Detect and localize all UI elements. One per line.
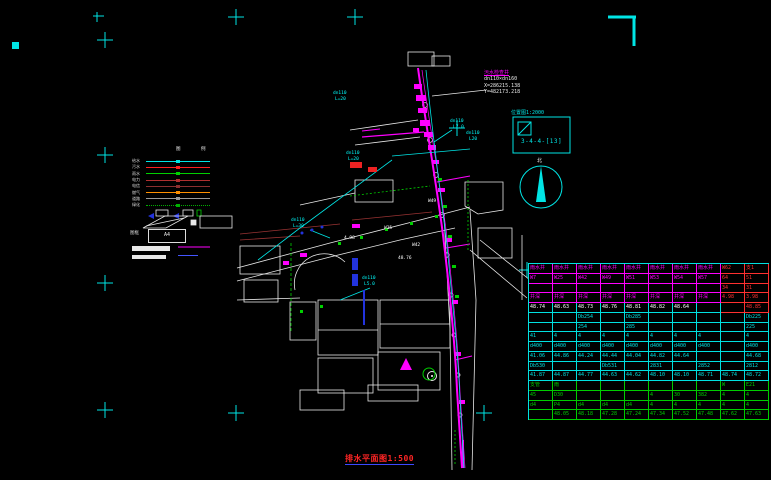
coord-y: Y=482173.218 (484, 89, 520, 96)
table-cell: 井深 (553, 293, 577, 303)
table-cell: 47.24 (625, 410, 649, 420)
table-cell (529, 313, 553, 323)
table-cell: 4 (649, 391, 673, 401)
index-box-code: 3-4-4-[13] (521, 138, 562, 145)
legend-item-label: 雨水 (132, 171, 146, 177)
table-cell: 4 (553, 332, 577, 342)
table-cell: P4 (553, 401, 577, 411)
legend-item-symbol (176, 197, 180, 200)
table-cell (601, 381, 625, 391)
map-label: L5.0 (364, 282, 375, 287)
sheet-size-box: A4 (148, 229, 186, 243)
table-cell: 44.64 (673, 352, 697, 362)
table-cell: 4 (721, 391, 745, 401)
table-cell: 44.62 (625, 371, 649, 381)
legend-item-symbol (176, 160, 180, 163)
table-cell: Db531 (601, 362, 625, 372)
table-cell: 井深 (697, 293, 721, 303)
table-cell: 44.86 (553, 352, 577, 362)
table-cell (625, 362, 649, 372)
table-cell: 4.98 (721, 293, 745, 303)
table-cell (721, 303, 745, 313)
table-cell: 44.44 (601, 352, 625, 362)
table-cell: D30 (553, 391, 577, 401)
frame-label: 图框 (130, 230, 139, 236)
table-cell (649, 323, 673, 333)
table-cell: W (721, 381, 745, 391)
legend-item-line (146, 173, 210, 174)
map-label: dn110 (466, 131, 480, 136)
table-cell: 井深 (601, 293, 625, 303)
table-cell: 2812 (745, 362, 769, 372)
pipe-lines-cyan (258, 70, 470, 468)
table-cell (721, 313, 745, 323)
table-cell (697, 284, 721, 294)
legend-item-line (146, 198, 210, 199)
table-cell: 48.82 (649, 303, 673, 313)
table-cell (601, 391, 625, 401)
table-cell: d400 (649, 342, 673, 352)
table-cell: d400 (625, 342, 649, 352)
map-label: dn110 (450, 119, 464, 124)
table-cell (529, 323, 553, 333)
table-cell: 41 (529, 332, 553, 342)
table-cell: 雨水井 (577, 264, 601, 274)
pipe-node-blobs (283, 84, 465, 404)
table-cell: 雨水井 (649, 264, 673, 274)
table-cell (721, 323, 745, 333)
table-cell: 48.81 (625, 303, 649, 313)
legend-items: 给水污水雨水电力电信燃气道路绿化 (132, 158, 216, 208)
legend-item-line (146, 192, 210, 193)
coordinate-annotation: 污水检查井 dn110×dn160 X=286215.138 Y=482173.… (484, 70, 520, 96)
sheet-title-wrap: 排水平面图1:500 (345, 446, 414, 465)
table-cell: 4 (721, 401, 745, 411)
sheet-title: 排水平面图1:500 (345, 454, 414, 465)
table-cell (553, 362, 577, 372)
legend-item-label: 给水 (132, 158, 146, 164)
table-cell: 雨水井 (697, 264, 721, 274)
table-cell: 47.28 (601, 410, 625, 420)
table-cell: 41.06 (529, 352, 553, 362)
site-linework (237, 52, 530, 470)
map-label: L20 (469, 137, 477, 142)
table-cell: W62 (721, 264, 745, 274)
table-cell: 31 (745, 284, 769, 294)
table-cell (577, 391, 601, 401)
legend-item: 绿化 (132, 202, 216, 208)
scale-bar-1 (132, 246, 170, 251)
legend-item-label: 污水 (132, 164, 146, 170)
map-label: L=30 (293, 224, 304, 229)
legend-item-symbol (176, 172, 180, 175)
table-cell: d4 (625, 401, 649, 411)
data-table: 雨水井雨水井雨水井雨水井雨水井雨水井雨水井雨水井W62支1W7W25W42W49… (528, 263, 769, 420)
legend-item-symbol (176, 204, 180, 207)
table-cell: E21 (745, 381, 769, 391)
table-cell: 48.10 (649, 371, 673, 381)
table-cell: 225 (745, 323, 769, 333)
scale-bar-2 (132, 255, 166, 259)
map-label: L=20 (348, 157, 359, 162)
table-cell: 48.74 (529, 303, 553, 313)
legend-item-line (146, 161, 210, 162)
table-cell: 支管 (529, 381, 553, 391)
table-cell: 4 (625, 332, 649, 342)
table-cell (673, 284, 697, 294)
table-cell: W57 (697, 274, 721, 284)
table-cell: 64 (721, 274, 745, 284)
table-cell: 48.74 (721, 371, 745, 381)
table-cell: d4 (529, 401, 553, 411)
table-cell: d400 (745, 342, 769, 352)
table-cell (529, 410, 553, 420)
table-cell: 4 (745, 401, 769, 411)
map-label: 48.76 (398, 256, 412, 261)
table-cell: W49 (601, 274, 625, 284)
table-cell: d4 (601, 401, 625, 411)
table-cell: 4 (697, 332, 721, 342)
legend-item-label: 绿化 (132, 202, 146, 208)
table-cell (577, 362, 601, 372)
table-cell: 雨 (553, 381, 577, 391)
map-label: dn110 (346, 151, 360, 156)
table-cell: 48.76 (601, 303, 625, 313)
legend-item-symbol (176, 185, 180, 188)
table-cell: 30 (673, 391, 697, 401)
table-cell (625, 284, 649, 294)
table-cell: Db254 (577, 313, 601, 323)
table-cell: 4 (697, 401, 721, 411)
legend-item-label: 电信 (132, 183, 146, 189)
table-cell: W51 (625, 274, 649, 284)
table-cell: 48.64 (673, 303, 697, 313)
legend-symbol-shapes (143, 210, 232, 228)
table-cell (721, 332, 745, 342)
table-cell: 44.04 (625, 352, 649, 362)
table-cell: 雨水井 (529, 264, 553, 274)
table-cell (601, 313, 625, 323)
table-cell: 48.72 (745, 371, 769, 381)
north-arrow (520, 166, 562, 208)
map-label: dn110 (362, 276, 376, 281)
legend-header-1: 图 (176, 146, 181, 152)
map-label: L7.0 (453, 125, 464, 130)
table-cell: 3.98 (745, 293, 769, 303)
table-cell (577, 381, 601, 391)
legend-item-label: 燃气 (132, 190, 146, 196)
table-cell (673, 362, 697, 372)
table-cell: 雨水井 (673, 264, 697, 274)
table-cell: 井深 (673, 293, 697, 303)
table-cell: 44.63 (601, 371, 625, 381)
table-cell: 支1 (745, 264, 769, 274)
table-cell: 44.82 (649, 352, 673, 362)
table-cell (697, 323, 721, 333)
table-cell: 2831 (649, 362, 673, 372)
table-cell (697, 313, 721, 323)
table-cell (721, 352, 745, 362)
table-cell: 44.68 (745, 352, 769, 362)
legend-item-label: 道路 (132, 196, 146, 202)
map-label: L=20 (335, 97, 346, 102)
table-cell: d400 (577, 342, 601, 352)
table-cell: Db285 (625, 313, 649, 323)
table-cell: 285 (625, 323, 649, 333)
red-junction-blobs (350, 162, 377, 172)
table-cell: 2852 (697, 362, 721, 372)
legend-item-symbol (176, 179, 180, 182)
table-cell: 4 (745, 391, 769, 401)
table-cell (649, 381, 673, 391)
table-cell (625, 381, 649, 391)
table-cell: 4 (601, 332, 625, 342)
legend-header-2: 例 (201, 146, 206, 152)
table-cell: 48.73 (577, 303, 601, 313)
table-cell: 48.71 (697, 371, 721, 381)
table-cell: d400 (601, 342, 625, 352)
table-cell: 4 (649, 332, 673, 342)
legend-item-line (146, 205, 210, 206)
table-cell: W25 (553, 274, 577, 284)
north-label: 北 (537, 157, 542, 164)
secondary-utility-lines (240, 212, 432, 240)
legend-item-line (146, 180, 210, 181)
index-box-title: 位置图1:2000 (511, 109, 544, 116)
table-cell: d400 (553, 342, 577, 352)
table-cell: 雨水井 (553, 264, 577, 274)
cad-viewport: 污水检查井 dn110×dn160 X=286215.138 Y=482173.… (0, 0, 771, 480)
legend-item-line (146, 167, 210, 168)
table-cell: 48.05 (553, 410, 577, 420)
table-cell: d400 (697, 342, 721, 352)
table-cell (721, 362, 745, 372)
table-cell: d4 (577, 401, 601, 411)
table-cell: 井深 (625, 293, 649, 303)
table-cell (697, 303, 721, 313)
table-cell: 44.87 (553, 371, 577, 381)
table-cell (673, 313, 697, 323)
table-cell (649, 284, 673, 294)
map-label: dn110 (333, 91, 347, 96)
table-cell: 34 (721, 284, 745, 294)
table-cell: 48.63 (553, 303, 577, 313)
table-cell: 48.10 (673, 371, 697, 381)
table-cell (529, 284, 553, 294)
table-cell: 44.24 (577, 352, 601, 362)
table-cell (649, 313, 673, 323)
table-cell: 47.63 (745, 410, 769, 420)
legend-item-symbol (176, 191, 180, 194)
table-cell (601, 284, 625, 294)
table-cell: 44.77 (577, 371, 601, 381)
table-cell: 254 (577, 323, 601, 333)
table-cell: 4 (745, 332, 769, 342)
table-cell (625, 391, 649, 401)
table-cell: 48.18 (577, 410, 601, 420)
legend-item-symbol (176, 166, 180, 169)
table-cell: 井深 (529, 293, 553, 303)
table-cell (721, 342, 745, 352)
pipe-size-label: dn110×dn160 (484, 76, 520, 83)
table-cell: 41.87 (529, 371, 553, 381)
table-cell: 4 (649, 401, 673, 411)
pipe-trunk-magenta (178, 68, 472, 468)
map-label: W25 (384, 226, 392, 231)
legend-item-label: 电力 (132, 177, 146, 183)
table-cell (553, 313, 577, 323)
table-cell: d400 (673, 342, 697, 352)
table-cell: d400 (529, 342, 553, 352)
map-label: W42 (412, 243, 420, 248)
index-grid-box (513, 117, 570, 153)
table-cell: 47.62 (721, 410, 745, 420)
table-cell (673, 381, 697, 391)
table-cell: 雨水井 (601, 264, 625, 274)
table-cell: Db225 (745, 313, 769, 323)
table-cell (697, 381, 721, 391)
table-cell (673, 323, 697, 333)
table-cell: 47.52 (673, 410, 697, 420)
map-label: W49 (428, 199, 436, 204)
table-cell (697, 352, 721, 362)
table-cell: W54 (673, 274, 697, 284)
table-cell: 4 (577, 332, 601, 342)
table-cell: 井深 (577, 293, 601, 303)
table-cell: 47.34 (649, 410, 673, 420)
table-cell: Db530 (529, 362, 553, 372)
table-cell: W7 (529, 274, 553, 284)
legend-item-line (146, 186, 210, 187)
table-cell: W53 (649, 274, 673, 284)
table-cell: 井深 (649, 293, 673, 303)
table-cell: 4 (673, 401, 697, 411)
table-cell: 45 (529, 391, 553, 401)
table-cell (553, 323, 577, 333)
table-cell (577, 284, 601, 294)
table-cell: 4 (673, 332, 697, 342)
map-label: dn110 (291, 218, 305, 223)
table-cell: 47.48 (697, 410, 721, 420)
table-cell (553, 284, 577, 294)
table-cell (601, 323, 625, 333)
table-cell: 51 (745, 274, 769, 284)
table-cell: 雨水井 (625, 264, 649, 274)
table-cell: 48.85 (745, 303, 769, 313)
table-cell: W42 (577, 274, 601, 284)
table-cell: 382 (697, 391, 721, 401)
map-label: 4.98 (344, 236, 355, 241)
